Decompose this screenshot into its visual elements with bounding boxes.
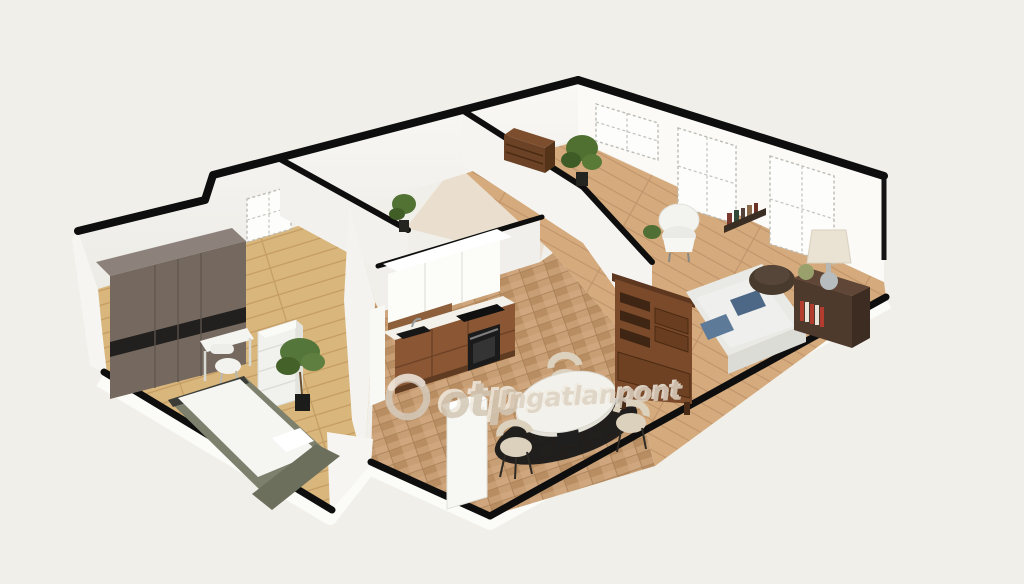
bedroom-plant-pot [295, 394, 310, 411]
kitchen-end-panel [370, 305, 385, 406]
plant-foliage-1c [582, 154, 602, 170]
floor-plan-3d: otp otp Ingatlanpont Ingatlanpont [0, 0, 1024, 584]
bedroom-plant-foliage-c [301, 353, 325, 371]
floor-plan-screenshot: otp otp Ingatlanpont Ingatlanpont [0, 0, 1024, 584]
hutch-leg-2 [684, 402, 690, 415]
living-plant [643, 225, 661, 239]
armchair-front [663, 238, 695, 252]
sideboard-side [852, 287, 870, 348]
lamp-base [820, 272, 838, 290]
lamp-shade [807, 230, 851, 263]
desk-chair-seat [215, 358, 241, 374]
plant-pot-1 [576, 172, 588, 186]
pouf-top [754, 265, 790, 285]
desk-chair-back [210, 344, 234, 354]
vase [798, 264, 814, 280]
bedroom-plant-foliage-b [276, 357, 300, 375]
lamp-neck [826, 263, 831, 273]
plant-pot-2 [399, 220, 409, 232]
plant-foliage-1b [561, 152, 581, 168]
plant-foliage-2b [389, 208, 405, 220]
